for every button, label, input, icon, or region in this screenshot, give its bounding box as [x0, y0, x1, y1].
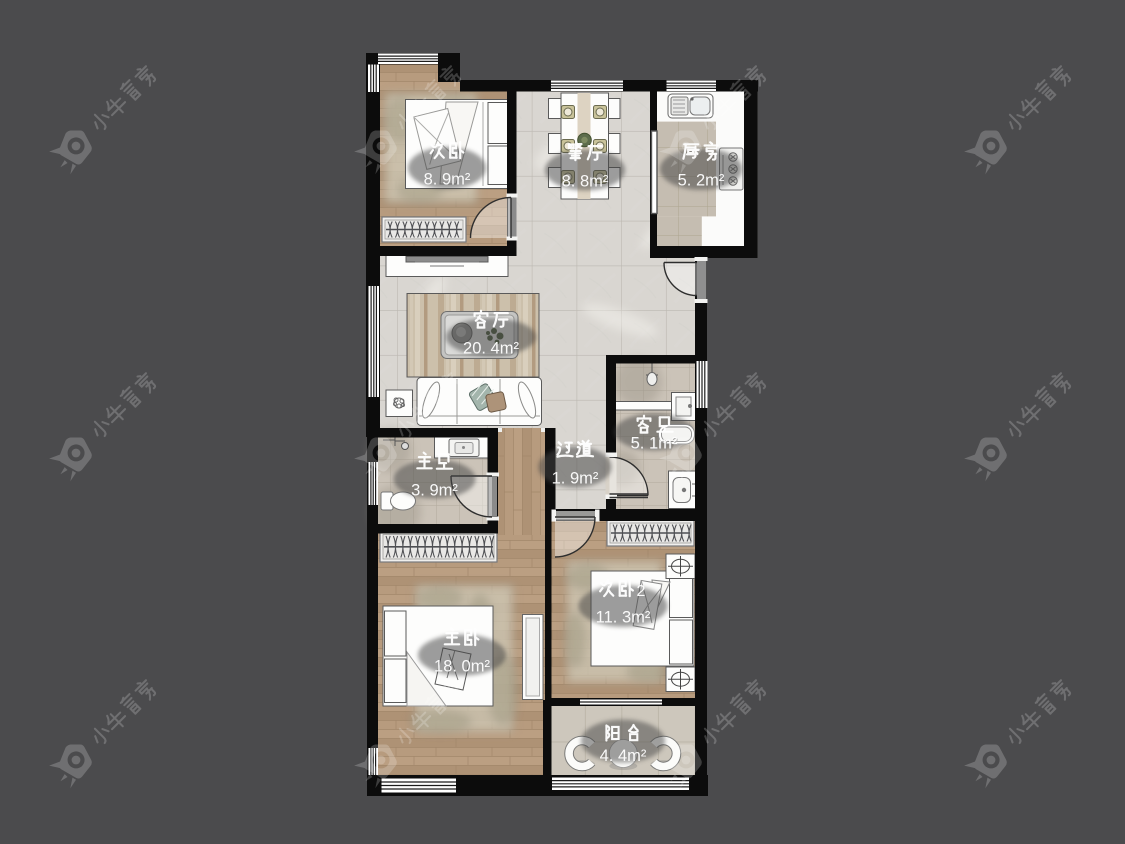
- svg-text:8. 9m²: 8. 9m²: [424, 171, 471, 189]
- svg-text:8. 8m²: 8. 8m²: [562, 173, 609, 191]
- svg-text:2: 2: [637, 583, 646, 600]
- svg-text:4. 4m²: 4. 4m²: [600, 747, 647, 765]
- svg-text:20. 4m²: 20. 4m²: [463, 340, 519, 358]
- svg-text:18. 0m²: 18. 0m²: [434, 658, 490, 676]
- svg-text:3. 9m²: 3. 9m²: [411, 482, 458, 500]
- svg-text:1. 9m²: 1. 9m²: [552, 470, 599, 488]
- svg-text:11. 3m²: 11. 3m²: [596, 609, 651, 627]
- svg-text:5. 1m²: 5. 1m²: [631, 435, 678, 453]
- svg-text:5. 2m²: 5. 2m²: [678, 172, 725, 190]
